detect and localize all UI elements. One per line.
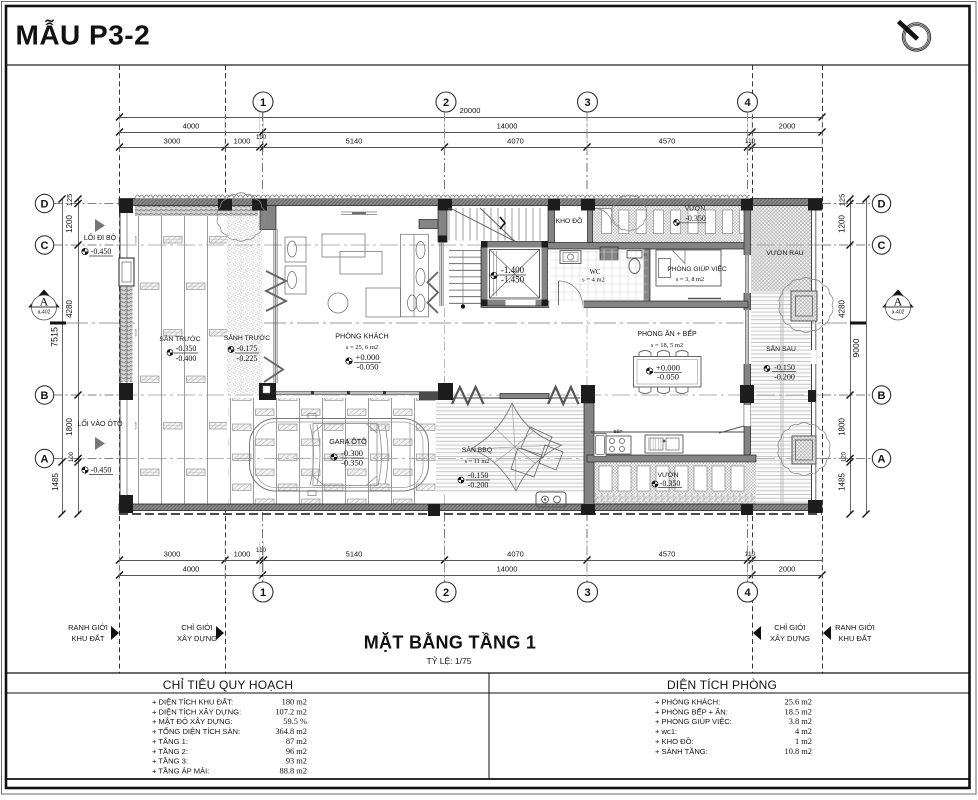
svg-text:110: 110 (745, 551, 756, 558)
svg-text:59.5 %: 59.5 % (283, 717, 307, 726)
svg-text:MẪU P3-2: MẪU P3-2 (16, 20, 151, 51)
svg-text:4280: 4280 (65, 300, 74, 318)
svg-text:20000: 20000 (460, 106, 481, 115)
svg-text:1800: 1800 (65, 418, 74, 436)
svg-text:+ KHO ĐỒ:: + KHO ĐỒ: (655, 736, 694, 746)
svg-text:+ TỔNG DIỆN TÍCH SÀN:: + TỔNG DIỆN TÍCH SÀN: (152, 727, 240, 736)
svg-text:C: C (878, 240, 886, 252)
svg-text:+ MẬT ĐỘ XÂY DỰNG:: + MẬT ĐỘ XÂY DỰNG: (152, 717, 233, 726)
svg-text:4070: 4070 (507, 550, 524, 559)
svg-text:VƯỜN: VƯỜN (685, 204, 705, 213)
svg-text:110: 110 (745, 138, 756, 145)
svg-text:93 m2: 93 m2 (286, 757, 307, 766)
svg-text:1800: 1800 (838, 418, 847, 436)
svg-text:RANH GIỚI: RANH GIỚI (835, 623, 875, 632)
svg-text:+ wc1:: + wc1: (655, 727, 677, 736)
svg-text:-0.200: -0.200 (468, 481, 489, 490)
svg-text:+ TẦNG 3:: + TẦNG 3: (152, 756, 188, 766)
svg-text:-0.200: -0.200 (774, 373, 795, 382)
svg-text:18.5 m2: 18.5 m2 (785, 707, 812, 716)
svg-text:+ DIỆN TÍCH KHU ĐẤT:: + DIỆN TÍCH KHU ĐẤT: (152, 697, 233, 707)
svg-text:9000: 9000 (851, 338, 861, 357)
svg-text:1485: 1485 (51, 473, 60, 491)
svg-text:s = 18, 5 m2: s = 18, 5 m2 (651, 342, 683, 349)
svg-text:3000: 3000 (164, 550, 181, 559)
svg-text:CHỈ TIÊU QUY HOẠCH: CHỈ TIÊU QUY HOẠCH (163, 677, 294, 692)
svg-text:14000: 14000 (497, 565, 518, 574)
svg-text:SÂN SAU: SÂN SAU (766, 344, 796, 353)
svg-text:-0.450: -0.450 (91, 466, 112, 475)
svg-text:DIỆN TÍCH PHÒNG: DIỆN TÍCH PHÒNG (667, 677, 777, 692)
svg-text:XÂY DỰNG: XÂY DỰNG (177, 634, 217, 643)
svg-text:RANH GIỚI: RANH GIỚI (68, 623, 108, 632)
svg-text:A: A (41, 453, 49, 465)
svg-text:3: 3 (584, 587, 590, 599)
svg-text:1000: 1000 (234, 550, 251, 559)
svg-text:1485: 1485 (838, 473, 847, 491)
svg-text:+0.000: +0.000 (356, 352, 380, 362)
svg-text:B: B (878, 390, 886, 402)
svg-text:SÂN TRƯỚC: SÂN TRƯỚC (159, 334, 200, 343)
svg-text:5140: 5140 (346, 137, 363, 146)
svg-text:a-402: a-402 (38, 310, 51, 316)
svg-text:s = 11 m2: s = 11 m2 (465, 458, 490, 465)
svg-text:-1.400: -1.400 (501, 265, 525, 275)
svg-text:+ TẦNG ÁP MÁI:: + TẦNG ÁP MÁI: (152, 765, 209, 775)
svg-text:+ PHÒNG BẾP + ĂN:: + PHÒNG BẾP + ĂN: (655, 706, 728, 716)
svg-text:125: 125 (65, 194, 74, 207)
svg-text:4000: 4000 (183, 122, 200, 131)
svg-text:2: 2 (443, 97, 449, 109)
svg-text:4000: 4000 (183, 565, 200, 574)
svg-text:SÂN BBQ: SÂN BBQ (462, 445, 492, 454)
svg-text:87 m2: 87 m2 (286, 737, 307, 746)
svg-text:96 m2: 96 m2 (286, 747, 307, 756)
svg-text:4570: 4570 (659, 550, 676, 559)
svg-text:a-402: a-402 (892, 310, 905, 316)
svg-text:1: 1 (260, 97, 266, 109)
svg-text:-0.300: -0.300 (341, 448, 363, 458)
svg-text:-0.175: -0.175 (237, 344, 258, 353)
svg-text:364.8 m2: 364.8 m2 (275, 727, 307, 736)
svg-text:+ DIỆN TÍCH XÂY DỰNG:: + DIỆN TÍCH XÂY DỰNG: (152, 707, 241, 716)
svg-text:+ PHÒNG KHÁCH:: + PHÒNG KHÁCH: (655, 698, 720, 707)
svg-text:VƯỜN RAU: VƯỜN RAU (766, 248, 803, 257)
svg-text:+ PHÒNG GIÚP VIỆC:: + PHÒNG GIÚP VIỆC: (655, 717, 732, 726)
svg-text:5140: 5140 (346, 550, 363, 559)
svg-text:-0.050: -0.050 (357, 362, 379, 372)
svg-text:1 m2: 1 m2 (795, 737, 812, 746)
svg-text:-0.350: -0.350 (660, 479, 681, 488)
svg-text:110: 110 (256, 547, 267, 554)
svg-text:VƯỜN: VƯỜN (657, 470, 678, 479)
svg-text:CHỈ GIỚI: CHỈ GIỚI (774, 623, 805, 632)
svg-text:TỶ LỆ: 1/75: TỶ LỆ: 1/75 (427, 655, 472, 666)
svg-text:A: A (40, 295, 49, 309)
svg-text:-0.350: -0.350 (685, 214, 706, 223)
svg-text:-0.050: -0.050 (657, 372, 679, 382)
svg-text:-0.350: -0.350 (341, 458, 363, 468)
svg-text:10.8 m2: 10.8 m2 (785, 747, 812, 756)
svg-text:3: 3 (584, 97, 590, 109)
svg-text:GARA ÔTÔ: GARA ÔTÔ (329, 437, 367, 446)
svg-text:3.8 m2: 3.8 m2 (789, 717, 812, 726)
svg-text:100: 100 (69, 451, 75, 462)
svg-text:-0.350: -0.350 (176, 344, 197, 353)
svg-text:PHÒNG KHÁCH: PHÒNG KHÁCH (335, 332, 389, 341)
svg-text:180 m2: 180 m2 (282, 698, 307, 707)
svg-text:+ SẢNH TẦNG:: + SẢNH TẦNG: (655, 746, 708, 756)
svg-text:PHÒNG GIÚP VIỆC: PHÒNG GIÚP VIỆC (667, 264, 726, 273)
svg-text:SẢNH TRƯỚC: SẢNH TRƯỚC (224, 333, 270, 342)
svg-text:+ TẦNG 2:: + TẦNG 2: (152, 746, 188, 756)
svg-text:1200: 1200 (838, 215, 847, 233)
svg-text:-0.450: -0.450 (91, 247, 112, 256)
svg-text:4: 4 (744, 97, 751, 109)
svg-text:110: 110 (256, 134, 267, 141)
svg-text:BẾP: BẾP (613, 428, 622, 434)
svg-text:4070: 4070 (507, 137, 524, 146)
svg-text:1: 1 (260, 587, 266, 599)
svg-text:s = 4 m2: s = 4 m2 (582, 277, 605, 284)
svg-text:KHU ĐẤT: KHU ĐẤT (839, 633, 872, 643)
svg-text:1200: 1200 (65, 215, 74, 233)
svg-text:4570: 4570 (659, 137, 676, 146)
svg-text:s = 25, 6 m2: s = 25, 6 m2 (346, 344, 378, 351)
svg-text:WC: WC (590, 269, 601, 276)
svg-text:3000: 3000 (164, 137, 181, 146)
svg-text:107.2 m2: 107.2 m2 (275, 707, 307, 716)
svg-text:D: D (878, 198, 886, 210)
svg-text:2000: 2000 (779, 565, 796, 574)
svg-text:A: A (894, 295, 903, 309)
svg-text:s = 3, 8 m2: s = 3, 8 m2 (676, 276, 704, 283)
svg-text:-1.450: -1.450 (501, 275, 525, 285)
svg-text:CHỈ GIỚI: CHỈ GIỚI (181, 623, 212, 632)
svg-text:MẶT BẰNG TẦNG 1: MẶT BẰNG TẦNG 1 (364, 632, 537, 653)
svg-text:-0.150: -0.150 (774, 363, 795, 372)
svg-text:B: B (41, 390, 49, 402)
svg-text:-0.150: -0.150 (468, 471, 489, 480)
svg-text:C: C (41, 240, 49, 252)
svg-text:88.8 m2: 88.8 m2 (280, 766, 307, 775)
svg-text:+ TẦNG 1:: + TẦNG 1: (152, 736, 188, 746)
svg-text:7515: 7515 (50, 327, 60, 347)
svg-text:120: 120 (842, 451, 848, 462)
svg-text:A: A (878, 453, 886, 465)
svg-text:2: 2 (443, 587, 449, 599)
svg-text:-0.400: -0.400 (176, 354, 197, 363)
svg-text:D: D (41, 198, 49, 210)
svg-text:4 m2: 4 m2 (795, 727, 812, 736)
svg-text:14000: 14000 (497, 122, 518, 131)
svg-text:XÂY DỰNG: XÂY DỰNG (770, 634, 810, 643)
svg-text:-0.225: -0.225 (237, 354, 258, 363)
svg-text:2000: 2000 (779, 122, 796, 131)
svg-text:4280: 4280 (838, 300, 847, 318)
svg-text:25.6 m2: 25.6 m2 (785, 698, 812, 707)
svg-text:4: 4 (744, 587, 751, 599)
svg-text:125: 125 (838, 194, 847, 207)
svg-text:1000: 1000 (234, 137, 251, 146)
svg-text:KHU ĐẤT: KHU ĐẤT (72, 633, 105, 643)
